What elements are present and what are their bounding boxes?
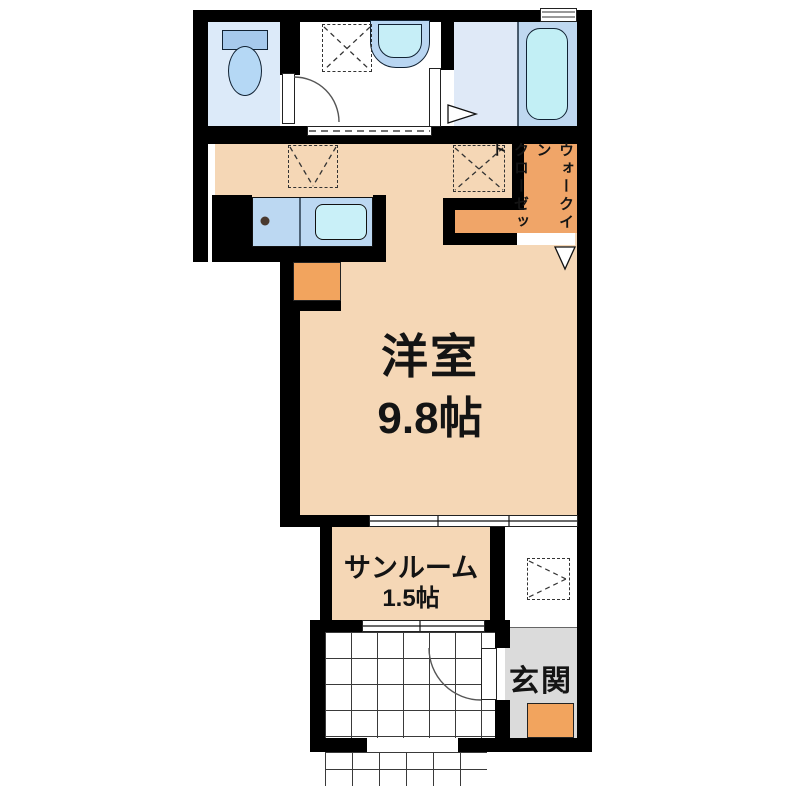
main-room-label: 洋室 xyxy=(320,318,540,387)
entrance-step xyxy=(527,703,574,738)
wall-segment xyxy=(280,22,300,75)
wall-segment xyxy=(280,301,341,311)
wall-segment xyxy=(577,10,592,752)
entrance-door-leaf xyxy=(481,648,497,700)
wall-segment xyxy=(212,247,386,262)
bathtub xyxy=(526,28,568,120)
wall-segment xyxy=(458,738,592,752)
sliding-door-main-south xyxy=(369,515,578,527)
vanity-sink-bowl xyxy=(378,24,422,58)
main-room-size: 9.8帖 xyxy=(320,382,540,446)
sunroom-size: 1.5帖 xyxy=(332,578,490,613)
storage-space xyxy=(527,558,570,600)
wall-segment xyxy=(485,620,510,632)
wall-segment xyxy=(320,527,332,632)
wall-segment xyxy=(490,527,505,627)
toilet-door-leaf xyxy=(282,73,295,124)
wall-segment xyxy=(455,233,517,245)
entrance-label: 玄関 xyxy=(500,656,582,700)
wall-segment xyxy=(310,620,325,752)
kitchen-sink xyxy=(315,204,367,240)
outside-tile-step xyxy=(325,752,487,786)
wall-segment xyxy=(280,515,369,527)
toilet-door-arc xyxy=(294,77,339,122)
wall-segment xyxy=(280,311,300,527)
wall-segment xyxy=(320,620,362,632)
walk-in-closet-label: ウォークイン クローゼット xyxy=(528,142,576,237)
walk-in-closet-label-line1: ウォークイン xyxy=(535,142,575,232)
bathroom-door-leaf xyxy=(429,68,441,127)
wall-segment xyxy=(441,22,454,70)
wall-segment xyxy=(495,632,510,648)
sliding-window-sunroom xyxy=(362,620,485,632)
sliding-door-sanitary xyxy=(307,126,432,136)
floor-plan: 洋室 9.8帖 サンルーム 1.5帖 玄関 ウォークイン クローゼット xyxy=(0,0,800,800)
wall-segment xyxy=(310,738,367,752)
kitchen-cabinet xyxy=(293,262,341,301)
washing-machine-space xyxy=(322,24,372,72)
appliance-space xyxy=(288,145,338,188)
toilet-bowl xyxy=(228,46,262,96)
wall-segment xyxy=(443,198,455,245)
bathroom-window xyxy=(540,8,577,22)
tiled-porch xyxy=(325,632,495,738)
